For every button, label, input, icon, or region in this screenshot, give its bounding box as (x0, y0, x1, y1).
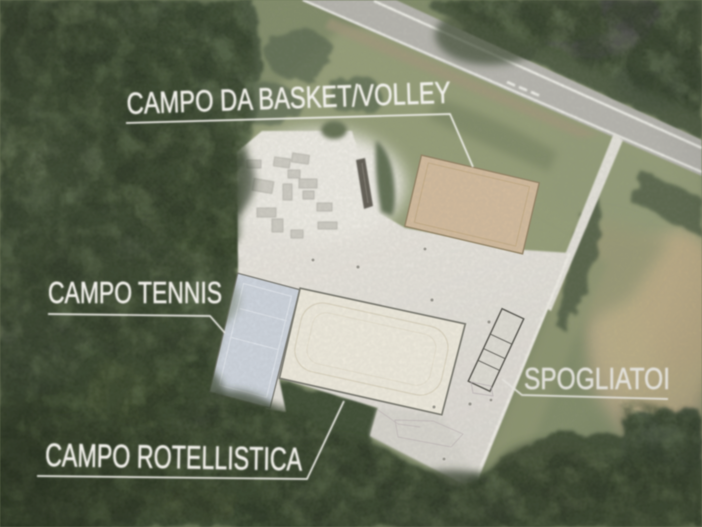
svg-text:CAMPO ROTELLISTICA: CAMPO ROTELLISTICA (45, 437, 303, 477)
svg-text:CAMPO TENNIS: CAMPO TENNIS (48, 276, 222, 310)
svg-text:SPOGLIATOI: SPOGLIATOI (524, 362, 670, 396)
